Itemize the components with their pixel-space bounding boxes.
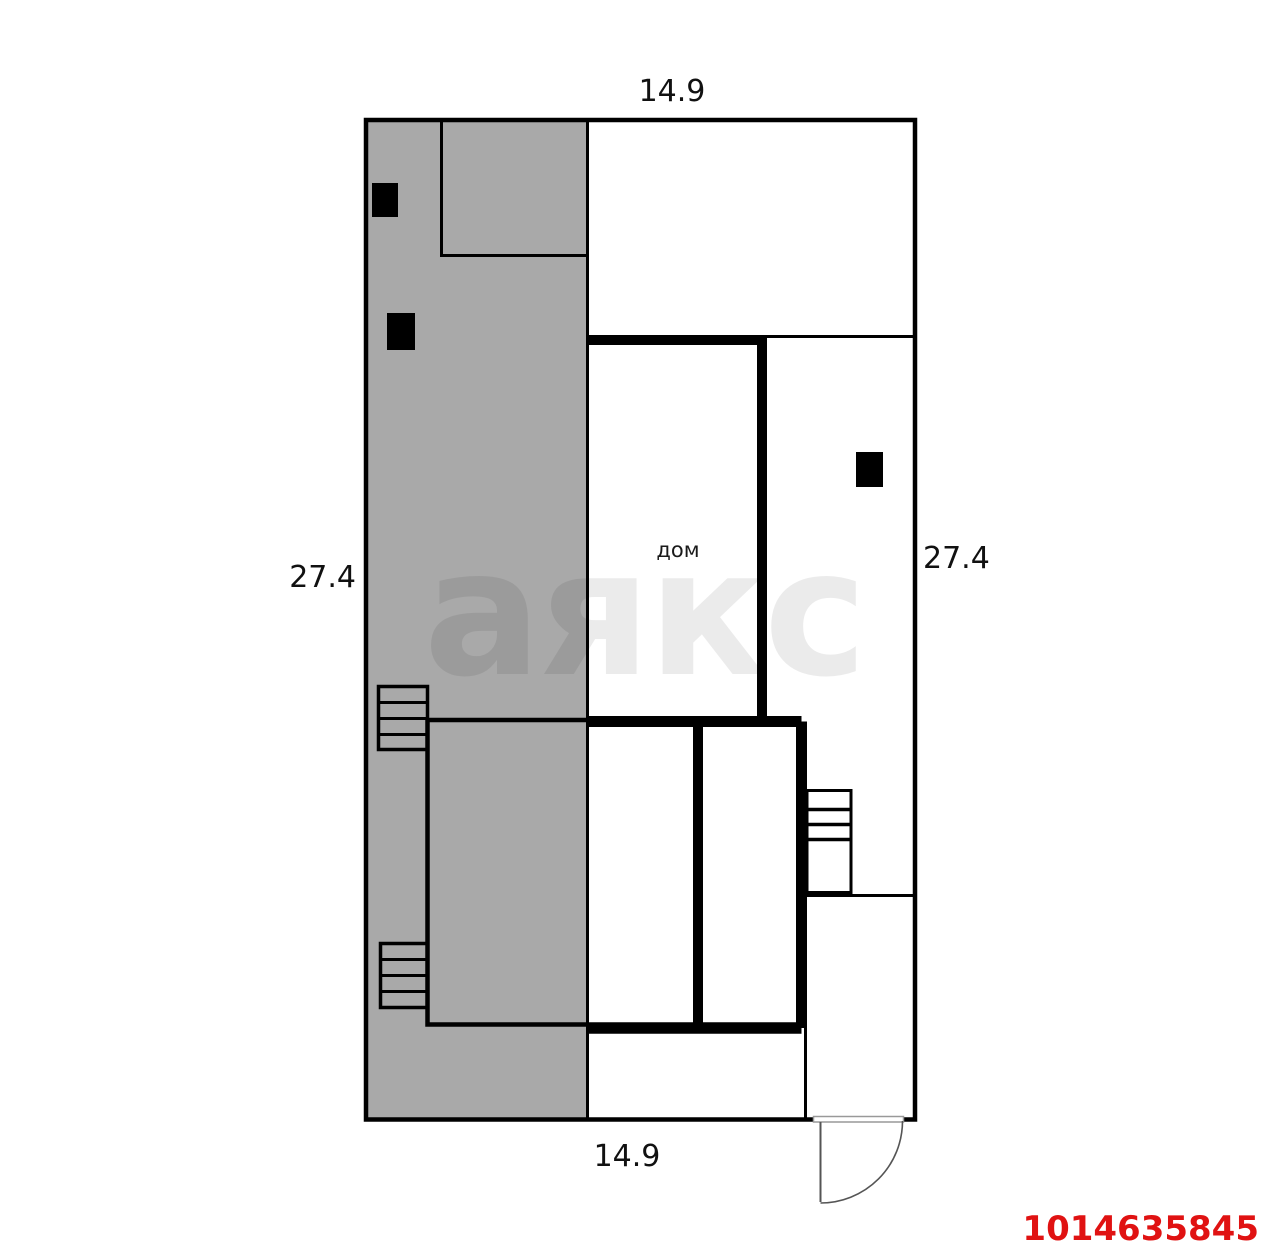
dimension-left: 27.4 xyxy=(289,560,356,595)
stairs-right-outline xyxy=(807,791,851,893)
stairs-right xyxy=(807,791,851,893)
watermark-text: аякс xyxy=(424,513,865,716)
dimension-bottom: 14.9 xyxy=(594,1139,661,1174)
dimension-top: 14.9 xyxy=(639,74,706,109)
marker-square-mid-left xyxy=(387,313,415,350)
listing-id: 1014635845 xyxy=(1022,1209,1259,1246)
marker-square-top-left xyxy=(372,183,398,217)
entrance-door-arc xyxy=(821,1121,903,1203)
marker-square-right xyxy=(856,452,883,487)
site-plan: 14.9 14.9 27.4 27.4 дом аякс 1014635845 xyxy=(0,0,1280,1246)
site-plan-svg: 14.9 14.9 27.4 27.4 дом аякс 1014635845 xyxy=(0,0,1280,1246)
entrance-threshold xyxy=(814,1117,904,1123)
dimension-right: 27.4 xyxy=(923,541,990,576)
